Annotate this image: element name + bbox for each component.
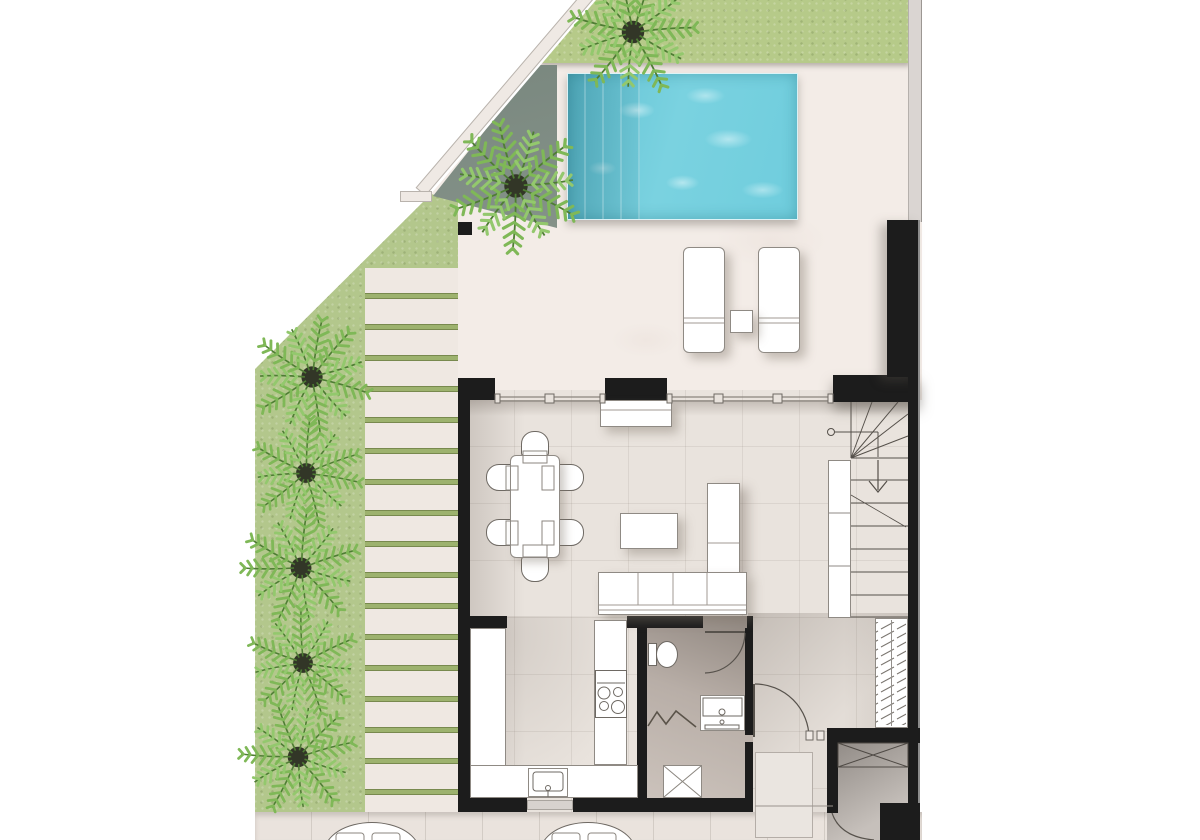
wall-bathroom-right-upper [745, 628, 753, 735]
wall-top-b [605, 378, 667, 400]
garden-gate-post [458, 222, 472, 235]
swimming-pool [567, 73, 798, 220]
wall-kitchen-bath-divider [637, 616, 647, 798]
stair-storage-cabinet [828, 460, 851, 618]
wall-right-lower [908, 377, 920, 840]
dining-table [510, 455, 560, 558]
sofa [598, 572, 747, 615]
wall-bottom-a [458, 798, 527, 812]
terrace-deck-strips [365, 268, 458, 812]
wall-bathroom-top-right [747, 616, 753, 628]
boundary-wall-sill [400, 191, 432, 202]
wall-bottom-b [573, 798, 753, 812]
living-floor-shade [470, 400, 908, 416]
kitchen-window-sill [527, 800, 573, 810]
floor-plan-scene [0, 0, 1200, 840]
toilet-bowl [656, 641, 678, 668]
sun-lounger-left [683, 247, 725, 353]
boundary-wall-right-light [908, 0, 922, 222]
wall-top-a [458, 378, 495, 400]
cooktop [595, 670, 627, 718]
coffee-table [620, 513, 678, 549]
radiator-coil [875, 618, 908, 728]
wall-bathroom-right-lower [745, 742, 753, 798]
dining-chair-bottom [521, 556, 549, 582]
shower-tray [663, 765, 702, 798]
wall-kitchen-top-stub [470, 616, 507, 628]
sofa-chaise [707, 483, 740, 573]
dining-chair-right-2 [556, 519, 584, 546]
wall-bottom-right-block [880, 803, 920, 840]
pool-entry-steps [568, 74, 640, 219]
wall-left [458, 378, 470, 812]
sideboard [600, 400, 672, 427]
wall-storage-left [827, 743, 838, 813]
wall-top-c [833, 375, 920, 402]
dining-chair-right-1 [556, 464, 584, 491]
lounger-side-table [730, 310, 753, 333]
garden-lawn-top [540, 0, 910, 63]
hall-runner-rug [755, 752, 813, 838]
wall-hall-bottom [827, 728, 920, 743]
kitchen-sink [528, 768, 568, 797]
dining-chair-top [521, 431, 549, 457]
bathroom-vanity [700, 695, 745, 731]
sun-lounger-right [758, 247, 800, 353]
wall-right-upper [887, 220, 920, 377]
